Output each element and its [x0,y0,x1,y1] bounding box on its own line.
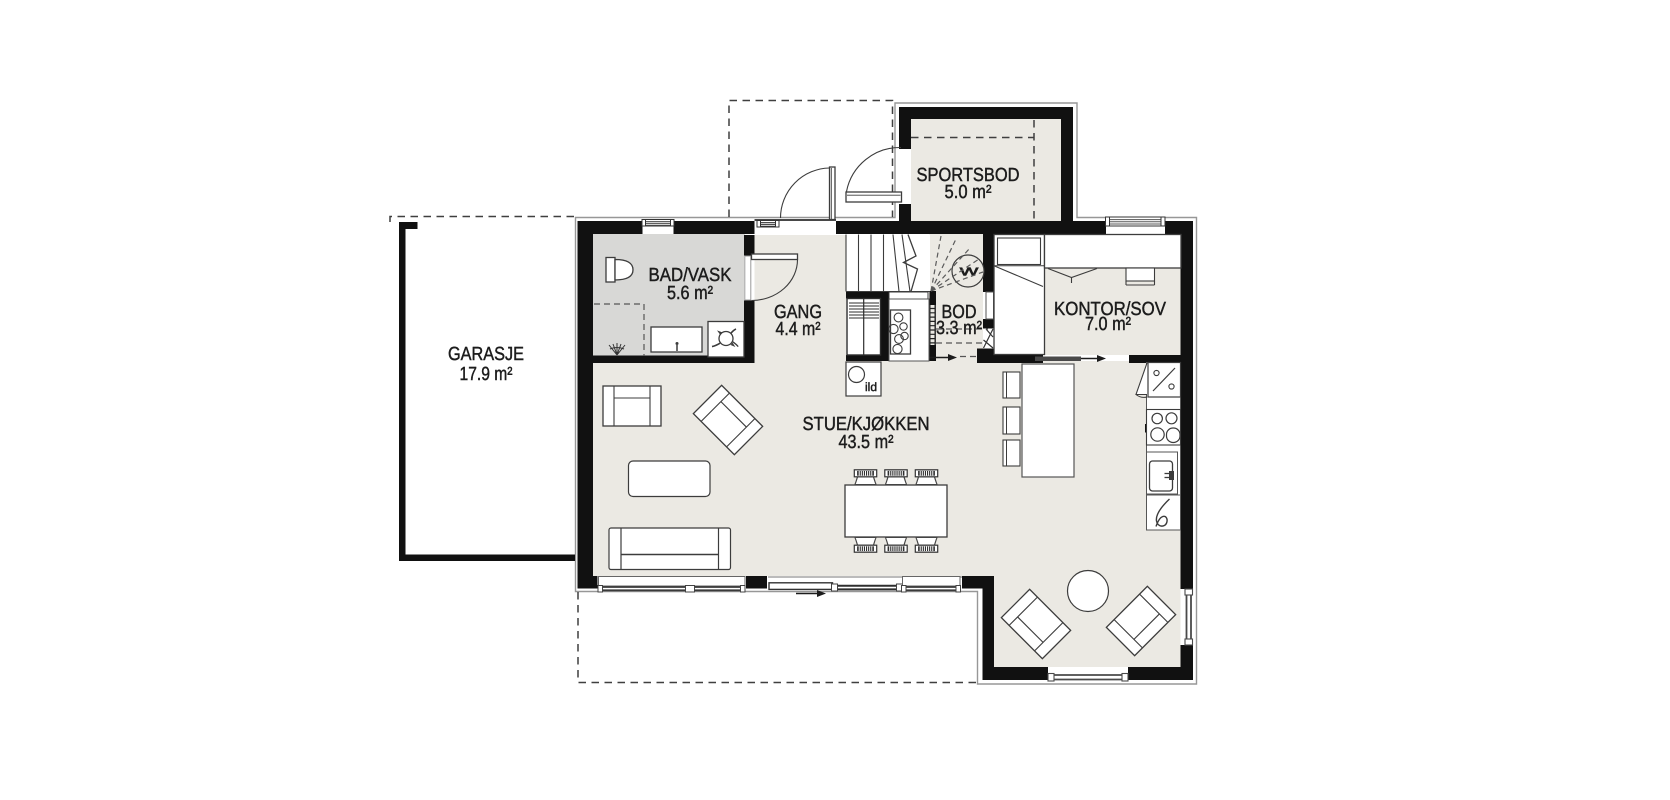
svg-text:4.4 m²: 4.4 m² [776,319,821,340]
svg-text:5.6 m²: 5.6 m² [667,283,713,304]
svg-text:ild: ild [865,380,877,394]
svg-text:5.0 m²: 5.0 m² [945,182,992,203]
svg-text:43.5 m²: 43.5 m² [839,432,894,453]
svg-text:GARASJE: GARASJE [448,344,524,365]
svg-text:3.3 m²: 3.3 m² [936,318,982,339]
svg-text:17.9 m²: 17.9 m² [460,364,513,385]
svg-text:7.0 m²: 7.0 m² [1085,314,1131,335]
svg-text:VV: VV [960,267,980,279]
